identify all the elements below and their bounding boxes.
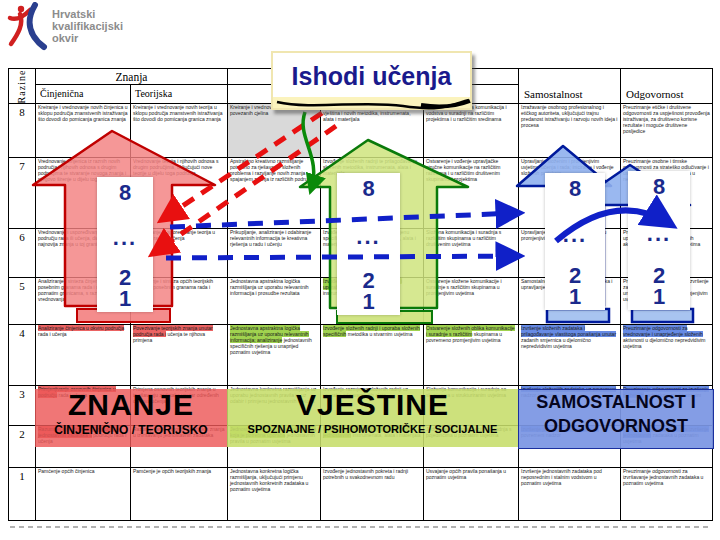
znanje-scale: 8 ... 21 [97, 177, 153, 312]
table-cell: Ostvarenje složenih oblika komunikacije … [424, 325, 519, 386]
znanje-title: ZNANJE [68, 390, 194, 420]
group-header-znanja: Znanja [36, 69, 228, 85]
vjestine-scale: 8 ... 21 [337, 173, 400, 315]
table-cell: Iniciranje novih oblika komunikacija i v… [424, 104, 519, 158]
vjestine-label-block: VJEŠTINE SPOZNAJNE / PSIHOMOTORIČKE / SO… [227, 389, 518, 447]
samostalnost-label-block: SAMOSTALNOST I ODGOVORNOST [518, 389, 714, 449]
scale-top: 8 [653, 174, 665, 200]
table-cell: Povezivanje teorijskih znanja unutar pod… [131, 325, 228, 386]
table-cell: Preuzimanje odgovornosti za izvršavanje … [621, 468, 713, 521]
row-level: 2 [9, 426, 36, 468]
row-level: 5 [9, 278, 36, 325]
table-cell: Ostvarenje složene komunikacije i suradn… [424, 278, 519, 325]
table-cell: Usvajanje općih pravila ponašanja u pozn… [424, 468, 519, 521]
ishodi-ucenja-callout: Ishodi učenja [271, 51, 472, 110]
table-cell: Složena komunikacija i suradnja s različ… [424, 229, 519, 278]
slide: Hrvatski kvalifikacijski okvir Razine Zn… [0, 0, 720, 540]
odgovornost-scale: 8 ... 21 [628, 171, 690, 310]
logo-line2: kvalifikacijski [52, 20, 123, 32]
table-cell: Izvođenje jednostavnih pokreta i radnji … [321, 468, 424, 521]
table-cell: Apstraktno kreativno razmišljanje potreb… [228, 158, 321, 229]
table-cell: Jednostavna apstraktna logička razmišlja… [228, 278, 321, 325]
logo-line3: okvir [52, 32, 123, 44]
samostalnost-scale: 8 ... 21 [545, 173, 605, 310]
scale-1: 1 [569, 287, 581, 308]
table-cell: Ostvarenje i vođenje upravljačke stručne… [424, 158, 519, 229]
row-level: 3 [9, 386, 36, 426]
scale-dots: ... [647, 227, 671, 240]
logo-line1: Hrvatski [52, 8, 123, 20]
scale-top: 8 [362, 176, 374, 202]
table-cell: Analiziranje činjenica u okviru područja… [36, 325, 131, 386]
column-header-teorijska: Teorijska [131, 85, 228, 104]
scale-1: 1 [119, 289, 131, 310]
scale-dots: ... [113, 231, 137, 244]
scale-top: 8 [569, 176, 581, 202]
table-cell: Jednostavna apstraktna logička razmišlja… [228, 325, 321, 386]
table-cell: Kreiranje i vrednovanje novih i složenih… [228, 104, 321, 158]
samostalnost-title-line2: ODGOVORNOST [544, 414, 688, 438]
scale-1: 1 [653, 287, 665, 308]
row-level: 6 [9, 229, 36, 278]
column-header-samostalnost: Samostalnost [519, 69, 621, 104]
logo-text: Hrvatski kvalifikacijski okvir [52, 8, 123, 44]
row-level: 8 [9, 104, 36, 158]
vjestine-title: VJEŠTINE [296, 390, 449, 420]
hko-logo: Hrvatski kvalifikacijski okvir [4, 2, 164, 54]
hko-logo-icon [4, 2, 50, 52]
scale-top: 8 [119, 180, 131, 206]
table-cell: Pamćenje općih činjenica [36, 468, 131, 521]
table-cell: Pamćenje je općih teorijskih znanja [131, 468, 228, 521]
samostalnost-title-line1: SAMOSTALNOST I [536, 390, 696, 414]
table-cell: Prikupljanje, analiziranje i odabiranje … [228, 229, 321, 278]
column-header-odgovornost: Odgovornost [621, 69, 713, 104]
table-cell: Jednostavna konkretna logička razmišljan… [228, 468, 321, 521]
scale-dots: ... [563, 228, 587, 241]
callout-title: Ishodi učenja [273, 62, 470, 91]
razine-header: Razine [9, 69, 36, 104]
table-cell: Izvođenje složenih radnji i uporaba slož… [321, 325, 424, 386]
table-cell: Preuzimanje etičke i društvene odgovorno… [621, 104, 713, 158]
table-cell: Izvršenje jednostavnih zadataka pod nepo… [519, 468, 621, 521]
vjestine-subtitle: SPOZNAJNE / PSIHOMOTORIČKE / SOCIJALNE [248, 423, 498, 435]
table-cell: Kreiranje i vrednovanje novih teorija u … [131, 104, 228, 158]
znanje-subtitle: ČINJENIČNO / TEORIJSKO [54, 423, 207, 437]
row-level: 4 [9, 325, 36, 386]
hand-drawn-underline [273, 94, 474, 112]
row-level: 7 [9, 158, 36, 229]
table-cell: Izvršenje složenih zadataka i prilagođav… [519, 325, 621, 386]
table-cell: Kreiranje novih istraživačkih i primijen… [321, 104, 424, 158]
row-level: 1 [9, 468, 36, 521]
column-header-cinjenicna: Činjenična [36, 85, 131, 104]
znanje-label-block: ZNANJE ČINJENIČNO / TEORIJSKO [35, 389, 227, 447]
table-cell: Preuzimanje odgovornosti za vrednovanje … [621, 325, 713, 386]
table-cell: Izražavanje osobnog profesionalnog i eti… [519, 104, 621, 158]
scale-1: 1 [362, 292, 374, 313]
scale-dots: ... [356, 230, 380, 243]
table-cell: Kreiranje i vrednovanje novih činjenica … [36, 104, 131, 158]
